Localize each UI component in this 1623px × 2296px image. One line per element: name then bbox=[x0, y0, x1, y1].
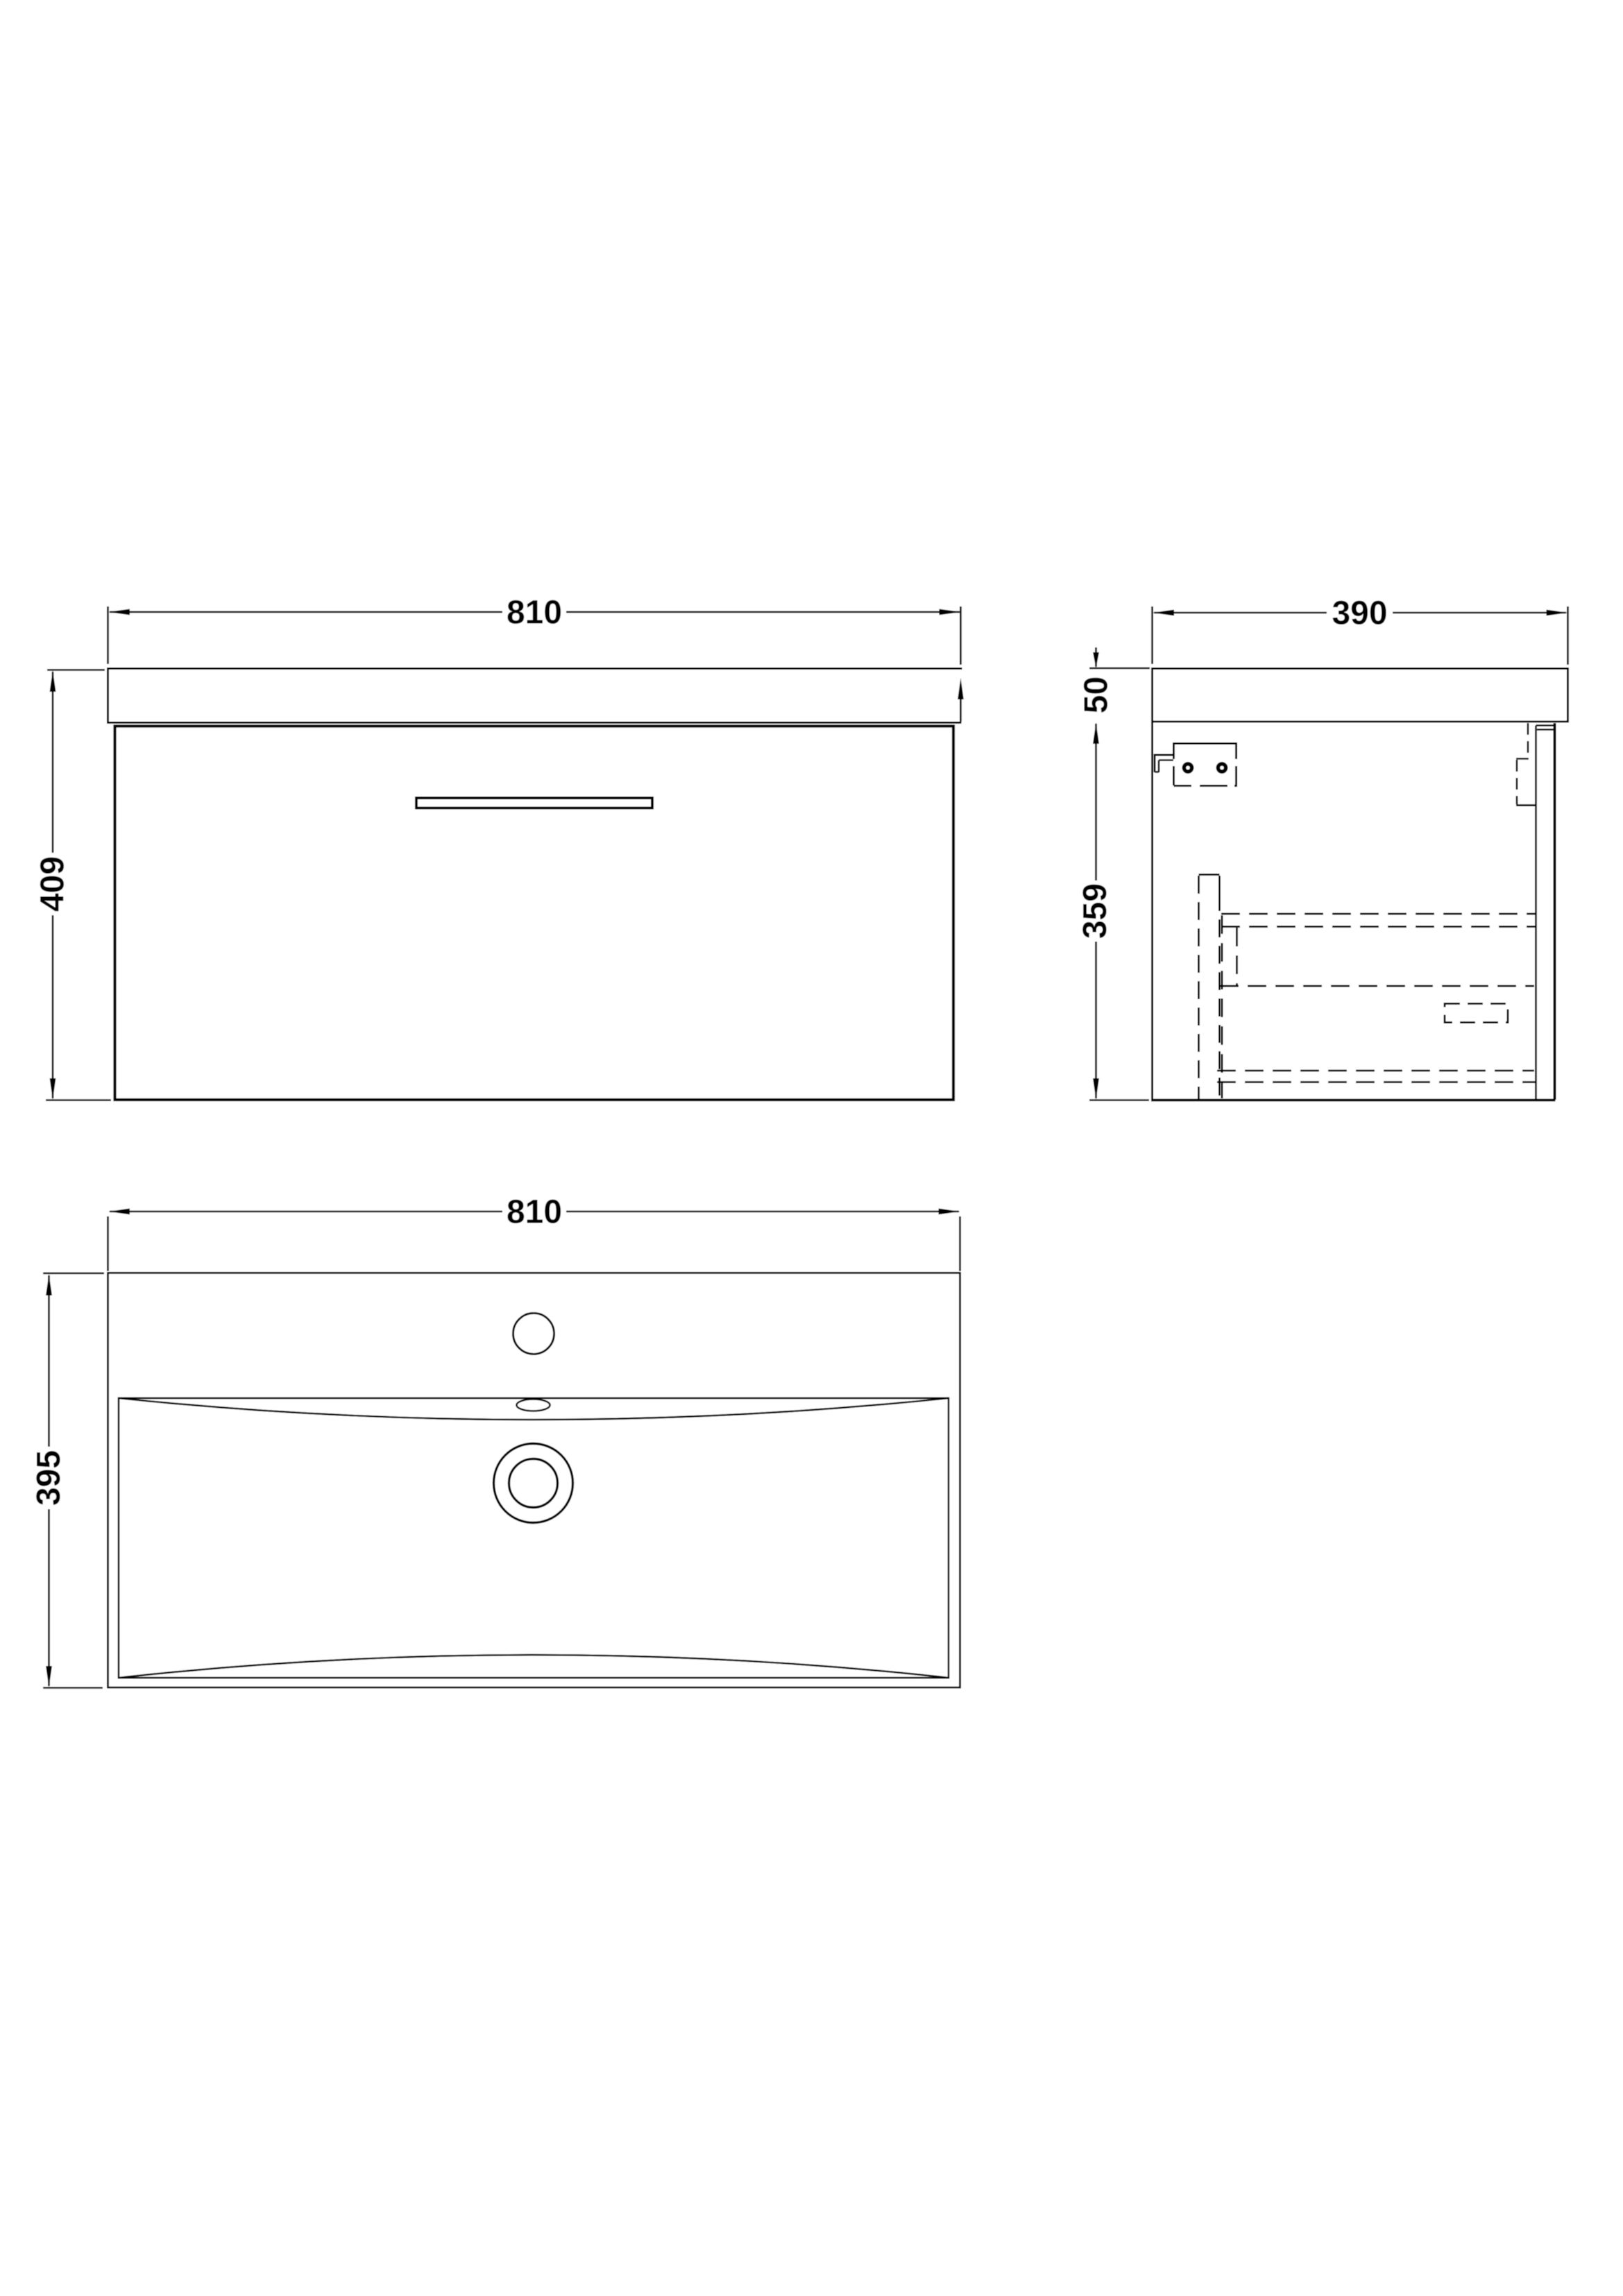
svg-text:50: 50 bbox=[1078, 677, 1115, 713]
svg-text:810: 810 bbox=[507, 1194, 562, 1231]
svg-text:395: 395 bbox=[31, 1450, 67, 1506]
svg-text:810: 810 bbox=[507, 595, 562, 631]
svg-text:409: 409 bbox=[35, 856, 71, 912]
svg-text:359: 359 bbox=[1077, 883, 1114, 939]
svg-text:390: 390 bbox=[1332, 595, 1387, 632]
